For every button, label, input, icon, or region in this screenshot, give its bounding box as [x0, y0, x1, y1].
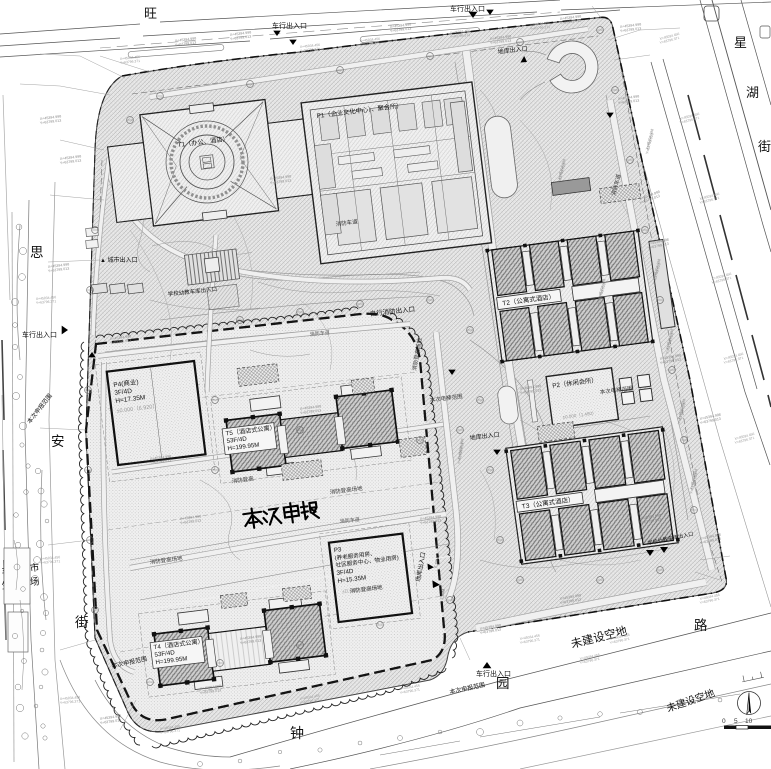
svg-text:车行出入口: 车行出入口: [476, 669, 511, 678]
svg-text:思: 思: [30, 245, 44, 260]
svg-text:园: 园: [496, 676, 510, 691]
svg-text:车行出入口: 车行出入口: [272, 21, 307, 30]
svg-text:车行出入口: 车行出入口: [450, 4, 485, 13]
svg-text:街: 街: [758, 139, 771, 154]
svg-text:10: 10: [745, 718, 753, 725]
svg-text:路: 路: [694, 618, 708, 633]
svg-text:街: 街: [75, 615, 89, 630]
svg-text:0: 0: [722, 718, 726, 725]
svg-text:钟: 钟: [290, 725, 304, 741]
svg-text:▲ 城市出入口: ▲ 城市出入口: [100, 256, 138, 264]
svg-text:5: 5: [734, 718, 738, 725]
svg-text:车行出入口: 车行出入口: [22, 330, 57, 339]
svg-text:星: 星: [734, 35, 747, 50]
svg-text:P3: P3: [333, 546, 342, 554]
svg-text:安: 安: [51, 434, 65, 449]
svg-text:湖: 湖: [746, 85, 759, 100]
svg-text:旺: 旺: [144, 6, 157, 21]
